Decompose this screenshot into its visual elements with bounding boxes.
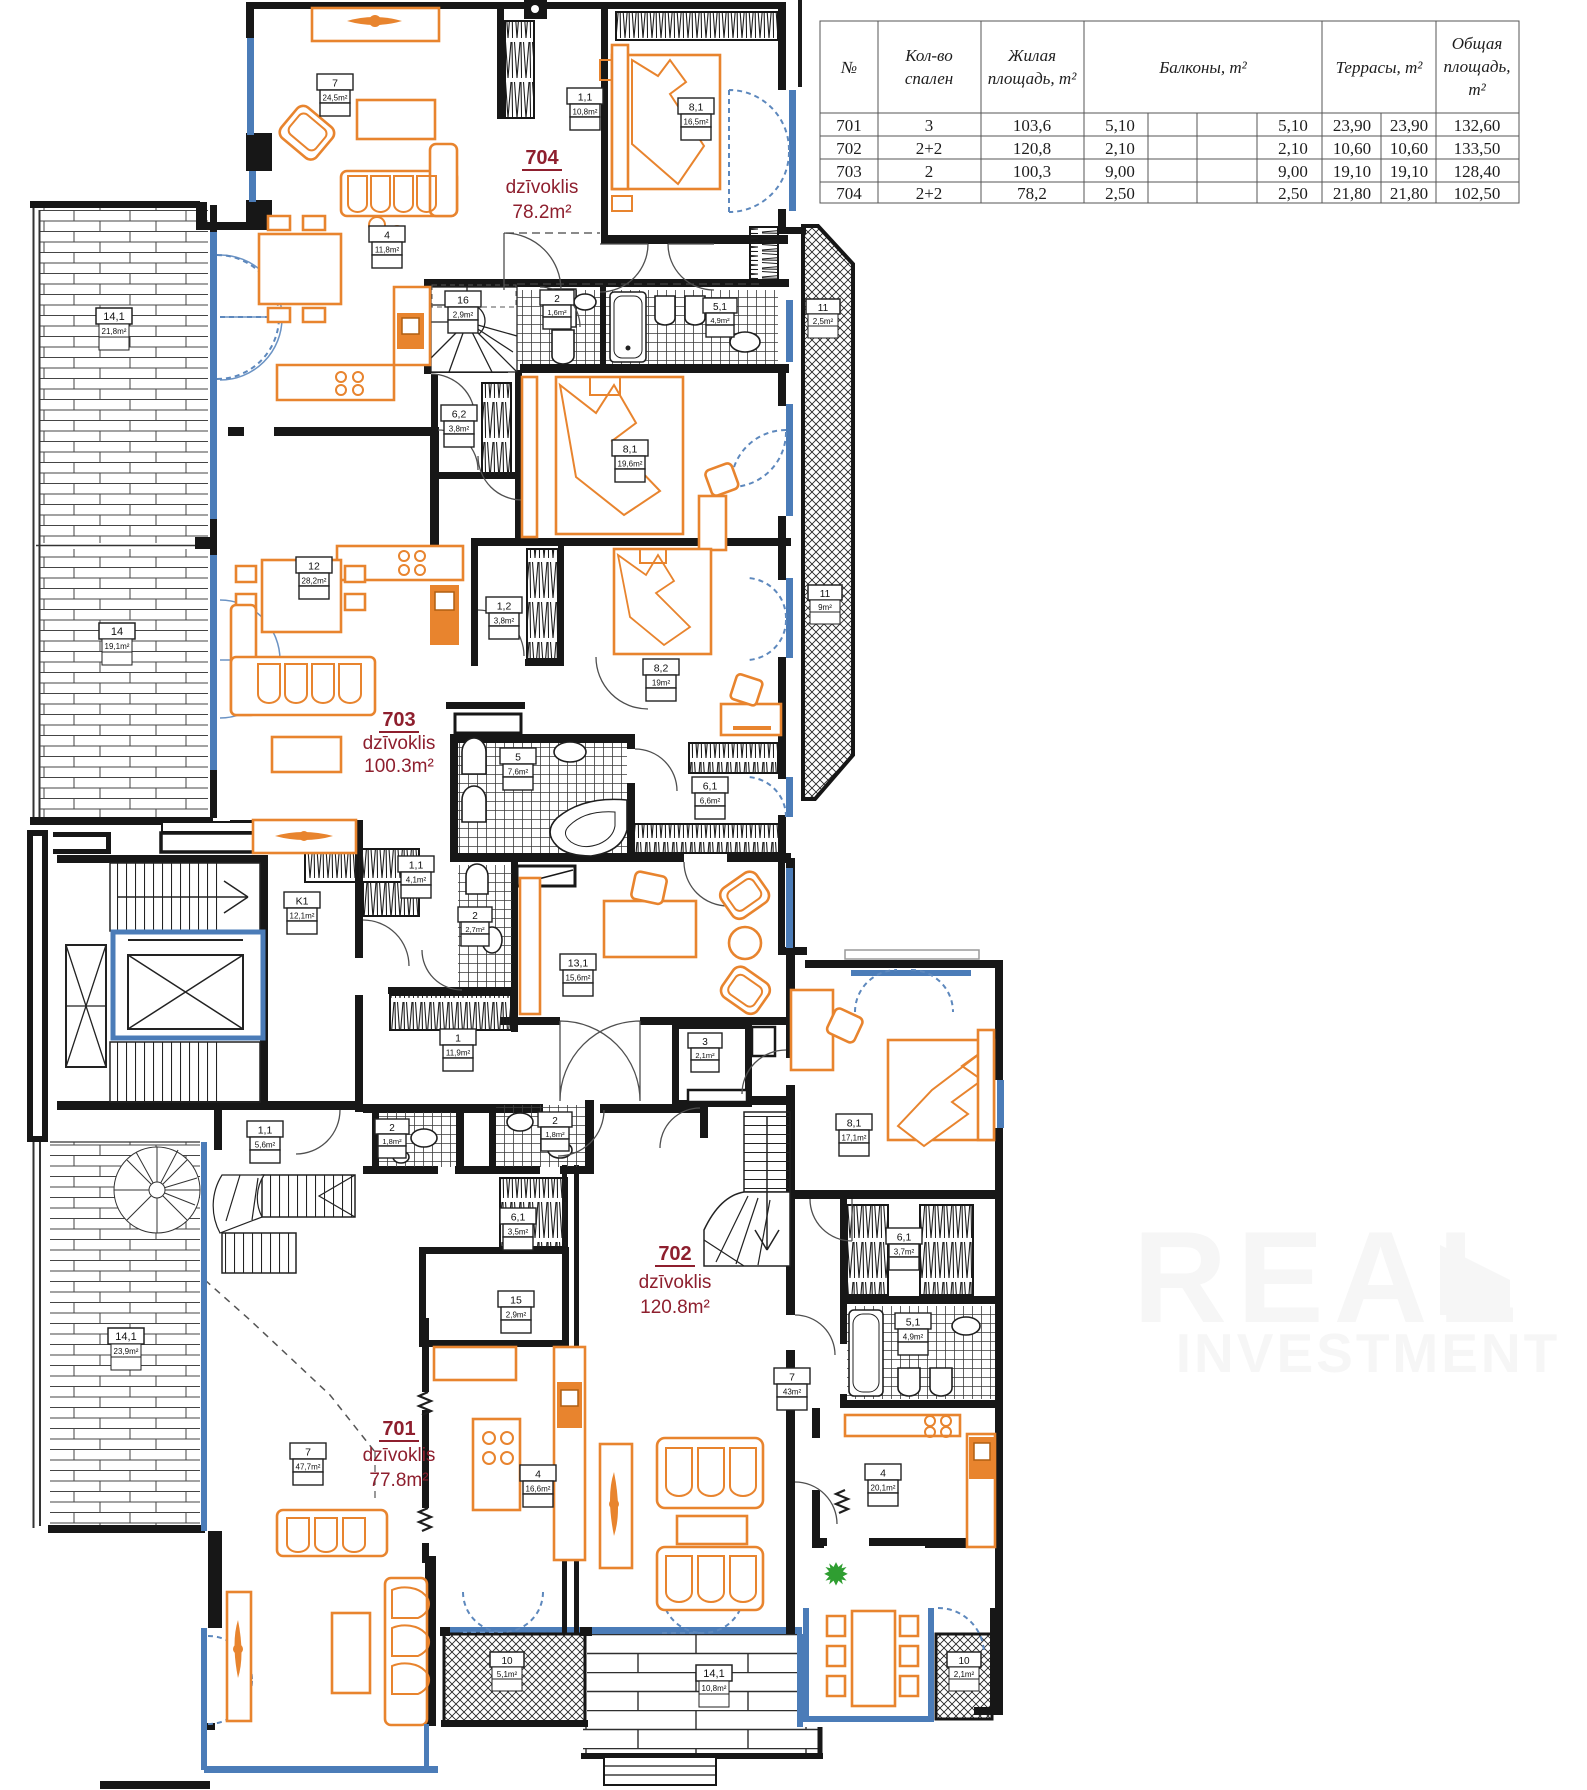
svg-text:1,1: 1,1 bbox=[409, 860, 424, 872]
svg-text:4,9m²: 4,9m² bbox=[903, 1333, 924, 1342]
svg-text:11,9m²: 11,9m² bbox=[446, 1049, 471, 1058]
svg-text:4,1m²: 4,1m² bbox=[406, 876, 427, 885]
svg-text:10,60: 10,60 bbox=[1333, 139, 1371, 158]
svg-text:24,5m²: 24,5m² bbox=[323, 94, 348, 103]
svg-text:1,8m²: 1,8m² bbox=[382, 1137, 402, 1146]
svg-text:2: 2 bbox=[389, 1123, 395, 1134]
svg-text:2,7m²: 2,7m² bbox=[465, 925, 485, 934]
svg-text:INVESTMENT: INVESTMENT bbox=[1176, 1322, 1560, 1384]
svg-text:7: 7 bbox=[789, 1372, 795, 1384]
svg-text:704: 704 bbox=[525, 147, 559, 169]
svg-text:5,1: 5,1 bbox=[713, 302, 727, 313]
svg-text:133,50: 133,50 bbox=[1454, 139, 1501, 158]
svg-text:1: 1 bbox=[455, 1033, 461, 1045]
svg-text:120,8: 120,8 bbox=[1013, 139, 1051, 158]
svg-text:2,50: 2,50 bbox=[1105, 184, 1135, 203]
svg-text:102,50: 102,50 bbox=[1454, 184, 1501, 203]
svg-text:1,8m²: 1,8m² bbox=[545, 1130, 565, 1139]
svg-text:6,1: 6,1 bbox=[703, 781, 718, 793]
svg-text:19,1m²: 19,1m² bbox=[105, 642, 130, 651]
svg-text:132,60: 132,60 bbox=[1454, 116, 1501, 135]
svg-text:4,9m²: 4,9m² bbox=[710, 316, 730, 325]
svg-text:K1: K1 bbox=[296, 896, 309, 908]
svg-text:8,2: 8,2 bbox=[654, 663, 669, 675]
svg-text:2,50: 2,50 bbox=[1278, 184, 1308, 203]
svg-text:2,1m²: 2,1m² bbox=[695, 1051, 715, 1060]
svg-text:9,00: 9,00 bbox=[1105, 162, 1135, 181]
svg-text:10,60: 10,60 bbox=[1390, 139, 1428, 158]
svg-text:103,6: 103,6 bbox=[1013, 116, 1051, 135]
svg-text:Террасы, m²: Террасы, m² bbox=[1336, 58, 1424, 77]
svg-text:10: 10 bbox=[501, 1656, 513, 1667]
svg-text:1,6m²: 1,6m² bbox=[547, 308, 567, 317]
svg-text:23,90: 23,90 bbox=[1333, 116, 1371, 135]
svg-text:23,9m²: 23,9m² bbox=[114, 1347, 139, 1356]
svg-text:11,8m²: 11,8m² bbox=[375, 246, 400, 255]
svg-text:10: 10 bbox=[958, 1656, 970, 1667]
svg-text:5,10: 5,10 bbox=[1278, 116, 1308, 135]
svg-text:14,1: 14,1 bbox=[703, 1668, 724, 1680]
svg-text:5: 5 bbox=[515, 752, 521, 764]
svg-text:8,1: 8,1 bbox=[623, 444, 638, 456]
svg-text:5,1m²: 5,1m² bbox=[497, 1670, 518, 1679]
svg-text:12,1m²: 12,1m² bbox=[290, 912, 315, 921]
svg-text:7: 7 bbox=[305, 1447, 311, 1459]
svg-text:8,1: 8,1 bbox=[689, 102, 704, 114]
svg-text:19,6m²: 19,6m² bbox=[618, 460, 643, 469]
svg-text:3: 3 bbox=[702, 1037, 708, 1048]
svg-text:704: 704 bbox=[836, 184, 862, 203]
svg-text:23,90: 23,90 bbox=[1390, 116, 1428, 135]
svg-text:13,1: 13,1 bbox=[568, 958, 589, 970]
svg-text:17,1m²: 17,1m² bbox=[842, 1134, 867, 1143]
svg-text:5,6m²: 5,6m² bbox=[255, 1141, 276, 1150]
svg-text:703: 703 bbox=[382, 709, 415, 731]
svg-text:702: 702 bbox=[836, 139, 862, 158]
svg-text:16,5m²: 16,5m² bbox=[684, 118, 709, 127]
svg-text:4: 4 bbox=[384, 230, 390, 242]
svg-text:21,8m²: 21,8m² bbox=[102, 327, 127, 336]
svg-text:6,1: 6,1 bbox=[897, 1232, 912, 1244]
svg-text:21,80: 21,80 bbox=[1333, 184, 1371, 203]
svg-text:43m²: 43m² bbox=[783, 1388, 802, 1397]
svg-text:5,10: 5,10 bbox=[1105, 116, 1135, 135]
svg-text:77.8m²: 77.8m² bbox=[369, 1470, 428, 1491]
svg-text:2: 2 bbox=[925, 162, 934, 181]
svg-text:128,40: 128,40 bbox=[1454, 162, 1501, 181]
svg-text:19,10: 19,10 bbox=[1390, 162, 1428, 181]
svg-text:№: № bbox=[840, 58, 857, 77]
svg-text:12: 12 bbox=[308, 561, 320, 573]
svg-text:2+2: 2+2 bbox=[916, 184, 943, 203]
svg-text:6,1: 6,1 bbox=[511, 1212, 526, 1224]
svg-text:2: 2 bbox=[554, 294, 560, 305]
svg-text:78.2m²: 78.2m² bbox=[512, 202, 571, 223]
svg-text:1,1: 1,1 bbox=[578, 92, 593, 104]
svg-text:100,3: 100,3 bbox=[1013, 162, 1051, 181]
svg-text:15,6m²: 15,6m² bbox=[566, 974, 591, 983]
svg-text:78,2: 78,2 bbox=[1017, 184, 1047, 203]
svg-text:701: 701 bbox=[836, 116, 862, 135]
svg-text:19m²: 19m² bbox=[652, 679, 671, 688]
svg-text:dzīvoklis: dzīvoklis bbox=[363, 1445, 436, 1466]
svg-text:6,2: 6,2 bbox=[452, 409, 467, 421]
svg-text:2: 2 bbox=[552, 1116, 558, 1127]
svg-text:47,7m²: 47,7m² bbox=[296, 1463, 321, 1472]
svg-text:dzīvoklis: dzīvoklis bbox=[639, 1272, 712, 1293]
svg-text:20,1m²: 20,1m² bbox=[871, 1484, 896, 1493]
svg-text:2,10: 2,10 bbox=[1105, 139, 1135, 158]
svg-text:28,2m²: 28,2m² bbox=[302, 577, 327, 586]
svg-text:14: 14 bbox=[111, 626, 123, 638]
svg-text:2+2: 2+2 bbox=[916, 139, 943, 158]
svg-text:3,8m²: 3,8m² bbox=[449, 425, 470, 434]
svg-text:4: 4 bbox=[535, 1469, 541, 1481]
svg-text:14,1: 14,1 bbox=[115, 1331, 136, 1343]
svg-text:7: 7 bbox=[332, 78, 338, 90]
svg-text:11: 11 bbox=[820, 589, 831, 600]
svg-text:3,8m²: 3,8m² bbox=[494, 617, 515, 626]
svg-text:2,10: 2,10 bbox=[1278, 139, 1308, 158]
svg-text:11: 11 bbox=[818, 303, 829, 314]
svg-text:3,5m²: 3,5m² bbox=[508, 1228, 529, 1237]
svg-text:2,9m²: 2,9m² bbox=[506, 1311, 527, 1320]
svg-text:2: 2 bbox=[472, 911, 478, 922]
svg-text:8,1: 8,1 bbox=[847, 1118, 862, 1130]
svg-text:1,2: 1,2 bbox=[497, 601, 512, 613]
svg-text:спален: спален bbox=[905, 69, 953, 88]
svg-text:Жилая: Жилая bbox=[1007, 46, 1056, 65]
svg-text:площадь,: площадь, bbox=[1444, 57, 1511, 76]
svg-text:6,6m²: 6,6m² bbox=[700, 797, 721, 806]
svg-text:701: 701 bbox=[382, 1418, 415, 1440]
svg-text:15: 15 bbox=[510, 1295, 522, 1307]
svg-text:702: 702 bbox=[658, 1243, 691, 1265]
svg-text:Балконы, m²: Балконы, m² bbox=[1158, 58, 1247, 77]
svg-text:16: 16 bbox=[457, 295, 469, 307]
svg-text:19,10: 19,10 bbox=[1333, 162, 1371, 181]
svg-text:dzīvoklis: dzīvoklis bbox=[506, 177, 579, 198]
svg-text:9m²: 9m² bbox=[818, 603, 832, 612]
svg-text:Кол-во: Кол-во bbox=[904, 46, 952, 65]
svg-text:7,6m²: 7,6m² bbox=[508, 768, 529, 777]
svg-text:2,9m²: 2,9m² bbox=[453, 311, 474, 320]
svg-text:10,8m²: 10,8m² bbox=[702, 1684, 727, 1693]
svg-text:120.8m²: 120.8m² bbox=[640, 1297, 710, 1318]
svg-text:2,5m²: 2,5m² bbox=[813, 317, 834, 326]
svg-text:1,1: 1,1 bbox=[258, 1125, 273, 1137]
svg-text:5,1: 5,1 bbox=[906, 1317, 921, 1329]
svg-text:3,7m²: 3,7m² bbox=[894, 1248, 915, 1257]
svg-text:2,1m²: 2,1m² bbox=[954, 1670, 975, 1679]
svg-text:m²: m² bbox=[1468, 80, 1486, 99]
svg-text:dzīvoklis: dzīvoklis bbox=[363, 733, 436, 754]
svg-text:14,1: 14,1 bbox=[103, 311, 124, 323]
svg-text:10,8m²: 10,8m² bbox=[573, 108, 598, 117]
svg-text:3: 3 bbox=[925, 116, 934, 135]
svg-text:100.3m²: 100.3m² bbox=[364, 756, 434, 777]
svg-text:площадь, m²: площадь, m² bbox=[988, 69, 1077, 88]
svg-text:4: 4 bbox=[880, 1468, 886, 1480]
svg-text:703: 703 bbox=[836, 162, 862, 181]
svg-text:Общая: Общая bbox=[1452, 34, 1503, 53]
svg-text:21,80: 21,80 bbox=[1390, 184, 1428, 203]
svg-text:16,6m²: 16,6m² bbox=[526, 1485, 551, 1494]
svg-text:9,00: 9,00 bbox=[1278, 162, 1308, 181]
